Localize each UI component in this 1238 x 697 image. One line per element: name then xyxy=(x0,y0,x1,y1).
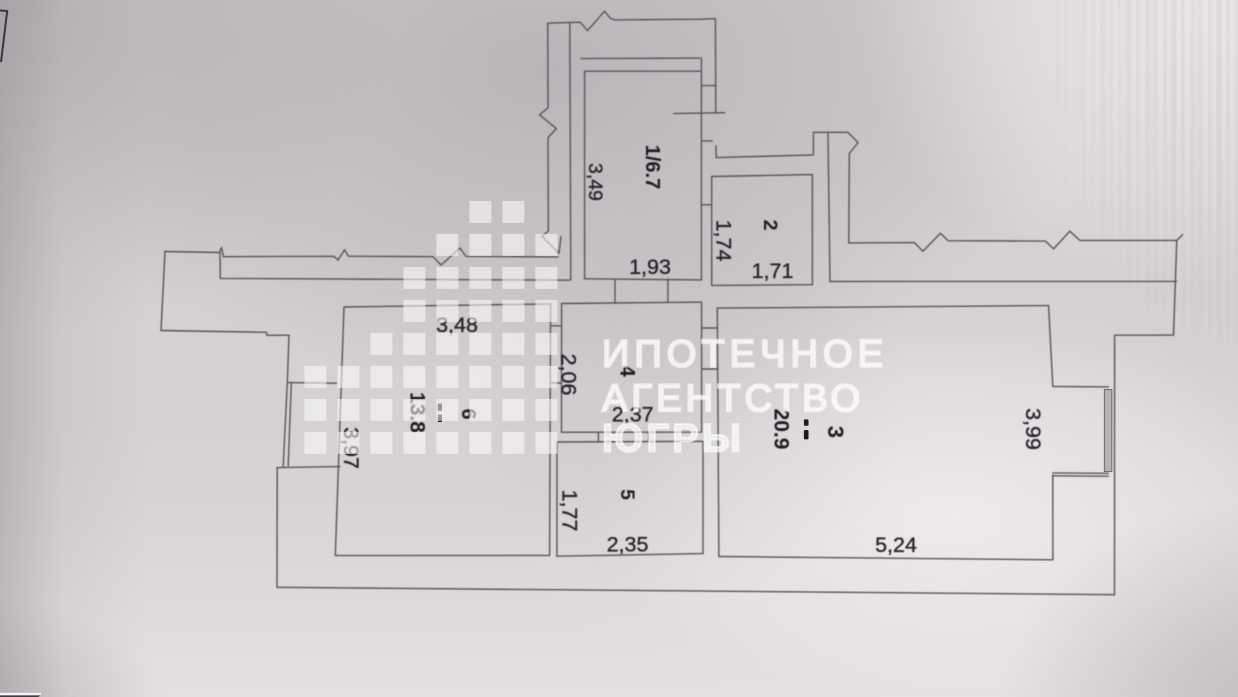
svg-text:АГЕНТСТВО: АГЕНТСТВО xyxy=(602,378,860,420)
svg-text:ЮГРЫ: ЮГРЫ xyxy=(602,417,741,461)
svg-text:5,24: 5,24 xyxy=(875,533,917,557)
svg-text:1,74: 1,74 xyxy=(712,220,736,262)
svg-text:5: 5 xyxy=(616,489,638,500)
svg-text:3,99: 3,99 xyxy=(1021,408,1045,450)
svg-text:ИПОТЕЧНОЕ: ИПОТЕЧНОЕ xyxy=(602,334,883,376)
svg-text:1/6.7: 1/6.7 xyxy=(641,145,663,189)
svg-text:1,77: 1,77 xyxy=(558,490,582,532)
svg-text:3,49: 3,49 xyxy=(584,163,606,201)
svg-text:1,93: 1,93 xyxy=(629,255,671,279)
svg-text:2,06: 2,06 xyxy=(557,354,581,396)
svg-text:2,35: 2,35 xyxy=(607,533,649,557)
svg-text:2: 2 xyxy=(759,220,781,231)
svg-text:3: 3 xyxy=(823,426,848,438)
svg-text:1,71: 1,71 xyxy=(752,259,794,283)
